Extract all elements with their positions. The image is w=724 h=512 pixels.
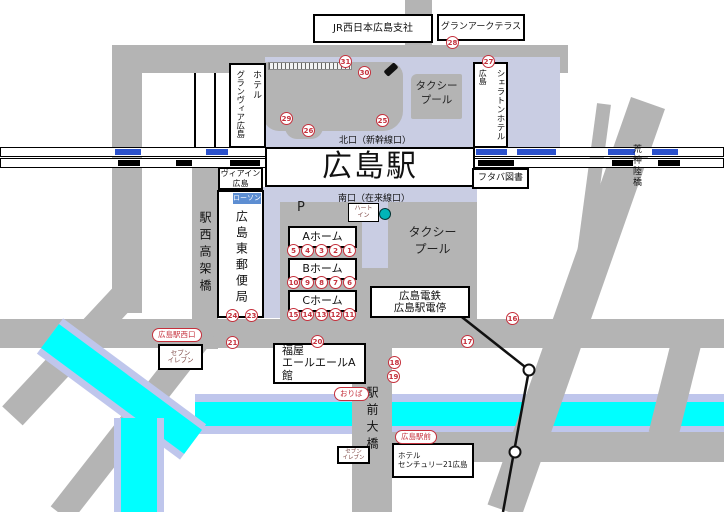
station-name: 広島駅 (322, 150, 418, 185)
building-label: 広島 (478, 69, 487, 85)
building-heart-in: ハート イン (348, 203, 379, 222)
station-building: 広島駅 (265, 147, 475, 187)
road-ekinishi-ramp (194, 73, 216, 150)
bus-stop-9: 9 (301, 276, 314, 289)
taxi-pool-label-line: タクシー (411, 80, 462, 94)
badge-ekimae: 広島駅前 (395, 430, 437, 444)
building-label: 広島東郵便局 (234, 210, 248, 306)
badge-west-exit: 広島駅西口 (152, 328, 202, 342)
river-vertical (114, 418, 164, 512)
bus-stop-8: 8 (315, 276, 328, 289)
bus-stop-23: 23 (245, 309, 258, 322)
river-water (195, 402, 724, 426)
building-east-post-office: ローソン 広島東郵便局 (217, 190, 264, 318)
building-label: 広島駅電停 (394, 302, 447, 314)
building-label: イレブン (342, 455, 364, 461)
bus-stop-30: 30 (358, 66, 371, 79)
building-hotel-granvia: ホテル グランヴィア広島 (229, 63, 266, 148)
bus-stop-26: 26 (302, 124, 315, 137)
building-label: センチュリー21広島 (398, 461, 468, 470)
bus-stop-7: 7 (329, 276, 342, 289)
badge-oriba: おりば (334, 387, 369, 401)
bus-stop-2: 2 (329, 244, 342, 257)
subway-entrance-marker (379, 208, 391, 220)
building-label: フタバ図書 (478, 173, 523, 183)
building-hotel-century: ホテル センチュリー21広島 (392, 443, 474, 478)
building-label: イレブン (168, 357, 194, 364)
building-label: グランアークテラス (441, 22, 521, 32)
rail-segment-blue (652, 149, 678, 155)
building-label: グランヴィア広島 (234, 70, 244, 138)
bus-stop-24: 24 (226, 309, 239, 322)
road-left-vertical (112, 45, 142, 313)
lawson-store-tag: ローソン (233, 193, 261, 204)
bus-stop-5: 5 (287, 244, 300, 257)
building-label: JR西日本広島支社 (333, 23, 413, 35)
taxi-pool-north-label: タクシー プール (411, 80, 462, 107)
platform-label: Cホーム (302, 295, 342, 308)
bus-stop-27: 27 (482, 55, 495, 68)
hiroshima-station-map: JR西日本広島支社 グランアークテラス 広島駅 フタバ図書 シェラトンホテル 広… (0, 0, 724, 512)
bus-stop-28: 28 (446, 36, 459, 49)
platform-label: Bホーム (302, 263, 342, 276)
rail-segment-black (176, 160, 192, 166)
bus-stop-10: 10 (287, 276, 300, 289)
bus-stop-21: 21 (226, 336, 239, 349)
taxi-pool-south-label: タクシー プール (388, 224, 477, 258)
building-hiroden-tram-stop: 広島電鉄 広島駅電停 (370, 286, 470, 318)
building-label: シェラトンホテル (494, 69, 504, 141)
taxi-pool-label-line: タクシー (388, 224, 477, 241)
bus-stop-17: 17 (461, 335, 474, 348)
building-label: 広島電鉄 (399, 290, 441, 302)
bus-stop-25: 25 (376, 114, 389, 127)
building-label: ホテル (251, 70, 261, 100)
bus-stop-14: 14 (301, 308, 314, 321)
bus-stop-20: 20 (311, 335, 324, 348)
bus-stop-13: 13 (315, 308, 328, 321)
building-label: ヴィアイン (221, 169, 261, 178)
bus-stop-19: 19 (387, 370, 400, 383)
bus-stop-4: 4 (301, 244, 314, 257)
parking-label: P (297, 200, 305, 215)
building-fukuya: 福屋 エールエールA館 (273, 343, 366, 384)
building-via-inn: ヴィアイン 広島 (218, 167, 263, 190)
rail-segment-black (230, 160, 260, 166)
bus-stop-29: 29 (280, 112, 293, 125)
bus-stop-31: 31 (339, 55, 352, 68)
rail-segment-blue (476, 149, 507, 155)
building-jr-west: JR西日本広島支社 (313, 14, 433, 43)
south-exit-label: 南口（在来線口） (319, 191, 429, 204)
bus-stop-18: 18 (388, 356, 401, 369)
rail-segment-blue (115, 149, 141, 155)
rail-segment-blue (517, 149, 556, 155)
bus-stop-15: 15 (287, 308, 300, 321)
bus-stop-1: 1 (343, 244, 356, 257)
building-label: 広島 (233, 179, 249, 188)
rail-segment-black (478, 160, 514, 166)
river-water (121, 418, 157, 512)
platform-label: Aホーム (302, 231, 342, 244)
rail-segment-black (118, 160, 140, 166)
north-exit-label: 北口（新幹線口） (320, 133, 430, 146)
bus-stop-6: 6 (343, 276, 356, 289)
kojin-bridge-label: 荒神陸橋 (630, 144, 643, 188)
rail-segment-blue (206, 149, 228, 155)
building-seven-eleven-west: セブン イレブン (158, 344, 203, 370)
building-futaba-books: フタバ図書 (472, 168, 529, 189)
taxi-pool-label-line: プール (388, 241, 477, 258)
bus-stop-11: 11 (343, 308, 356, 321)
bus-stop-16: 16 (506, 312, 519, 325)
building-label: エールエールA館 (282, 357, 364, 382)
bus-stop-12: 12 (329, 308, 342, 321)
building-label: イン (357, 213, 369, 219)
bus-stop-3: 3 (315, 244, 328, 257)
building-sheraton-hotel: シェラトンホテル 広島 (473, 62, 508, 148)
river-horizontal (195, 394, 724, 434)
ekinishi-viaduct-label: 駅西高架橋 (197, 211, 214, 296)
rail-segment-black (658, 160, 680, 166)
taxi-pool-label-line: プール (411, 94, 462, 108)
